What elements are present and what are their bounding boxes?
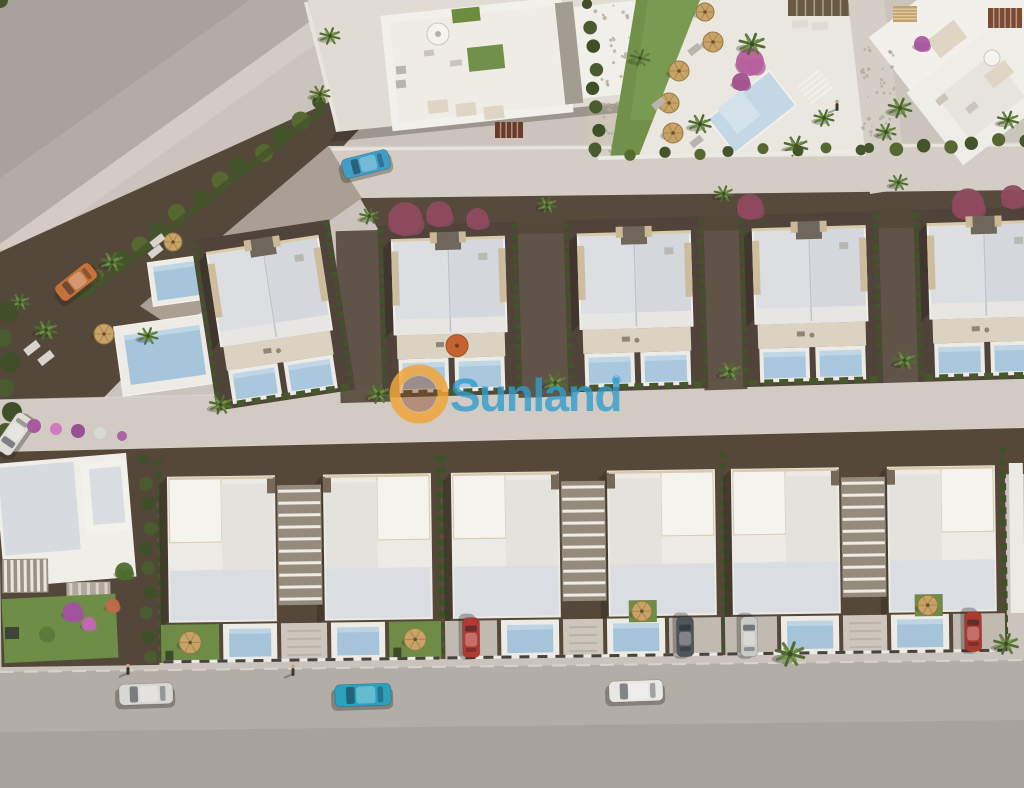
bottom-street-far-lane	[0, 720, 1024, 788]
twin-villa-4	[735, 190, 883, 387]
car-silver-driveway	[736, 613, 758, 659]
corner-lawn	[1, 594, 118, 663]
dark-pergola	[988, 8, 1022, 28]
stair-pergola	[561, 481, 607, 602]
twin-villa-1	[191, 219, 355, 410]
watermark-text: Sunland	[450, 369, 621, 421]
twin-villa-5	[913, 184, 1024, 382]
car-red-driveway-1	[458, 613, 480, 659]
next-lot-sliver	[1009, 463, 1024, 613]
rooftop-white-parasol	[984, 50, 1000, 66]
watermark: Sunland ®	[395, 369, 621, 421]
garden-steps	[66, 582, 110, 597]
aerial-site-render: Sunland ®	[0, 0, 1024, 788]
straw-pergola	[893, 6, 917, 22]
car-red-driveway-2	[960, 607, 982, 653]
stair-pergola	[277, 485, 323, 606]
roof-garden	[451, 7, 480, 24]
roof-garden	[467, 44, 505, 72]
watermark-registered-mark: ®	[612, 373, 621, 387]
entrance-pergola	[495, 122, 523, 138]
twin-villa-3	[563, 216, 708, 392]
large-twin-villa-1	[157, 453, 444, 663]
car-gray-driveway	[672, 612, 694, 658]
car-silver-street	[115, 682, 176, 709]
car-teal-street	[331, 683, 394, 711]
stair-pergola	[841, 477, 887, 598]
garden-pool	[114, 314, 217, 396]
car-white-street	[605, 679, 666, 706]
bottom-villa-row	[0, 440, 1024, 669]
watermark-ring-inner	[401, 376, 437, 412]
corner-pergola	[2, 558, 48, 593]
render-canvas: Sunland ®	[0, 0, 1024, 788]
lounger-pergola	[788, 0, 858, 16]
